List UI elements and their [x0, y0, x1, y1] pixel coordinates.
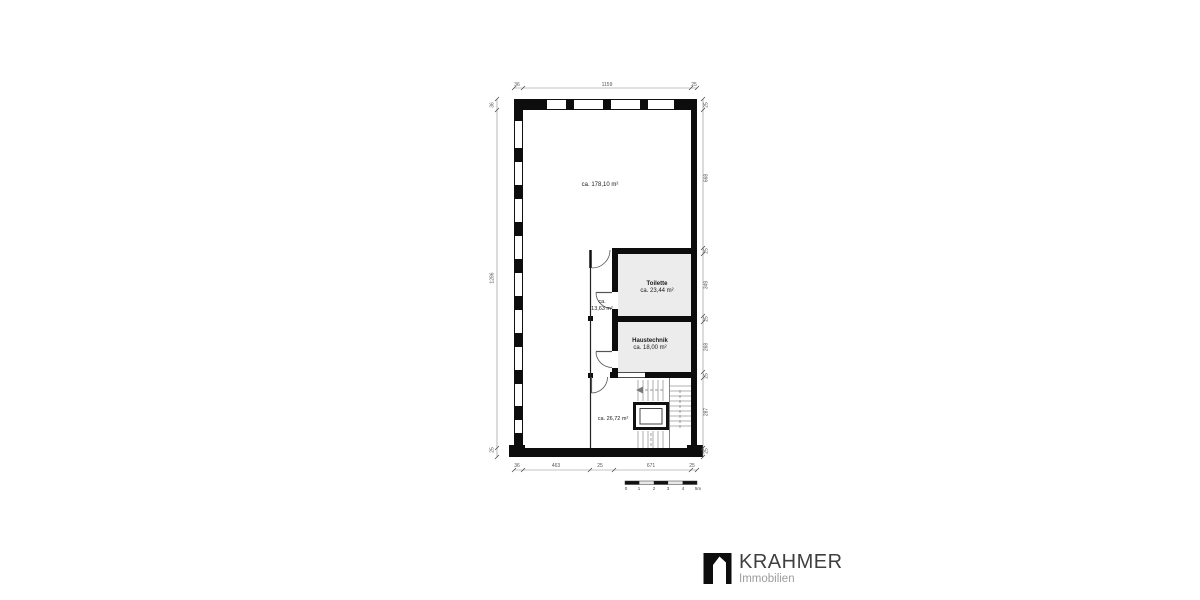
scale-bar: [625, 481, 697, 485]
room-name-haustechnik: Haustechnik: [632, 338, 668, 345]
room-label-main: ca. 178,10 m²: [582, 182, 619, 189]
top-wall-pillars: [514, 99, 697, 110]
room-area-stairwell: ca. 26,72 m²: [598, 416, 629, 422]
house-icon: [703, 552, 732, 585]
stair-direction-arrow: [636, 387, 643, 394]
dim-label-right-6: 25: [705, 373, 710, 379]
dim-label-right-3: 349: [705, 281, 710, 289]
scale-tick-4: 4: [682, 486, 685, 491]
dim-label-left-1: 1286: [491, 272, 496, 283]
room-fills: [618, 254, 691, 372]
room-area-corridor-line2: 13,63 m²: [591, 306, 613, 313]
dim-label-left-0: 36: [491, 102, 496, 108]
dim-label-right-7: 287: [705, 408, 710, 416]
dim-label-right-0: 25: [705, 102, 710, 108]
scale-tick-5: 5m: [695, 486, 701, 491]
company-logo: KRAHMER Immobilien: [703, 552, 843, 585]
scale-tick-3: 3: [667, 486, 670, 491]
scale-tick-1: 1: [638, 486, 641, 491]
room-label-stairwell: ca. 26,72 m²: [598, 416, 629, 423]
elevator-icon: [635, 404, 668, 429]
scale-tick-2: 2: [653, 486, 656, 491]
room-label-corridor: ca. 13,63 m²: [591, 299, 613, 312]
dim-label-top-0: 36: [514, 83, 520, 88]
dim-label-right-1: 668: [705, 174, 710, 182]
interior-opening: [618, 373, 645, 378]
page-canvas: ca. 178,10 m² Toilette ca. 23,44 m² ca. …: [0, 0, 1200, 600]
logo-brand: KRAHMER: [739, 552, 843, 572]
dim-label-top-1: 1159: [602, 83, 613, 88]
room-label-haustechnik: Haustechnik ca. 18,00 m²: [632, 338, 668, 352]
room-area-main: ca. 178,10 m²: [582, 182, 619, 188]
room-area-haustechnik: ca. 18,00 m²: [632, 345, 668, 352]
dim-label-right-4: 25: [705, 316, 710, 322]
logo-text: KRAHMER Immobilien: [739, 552, 843, 585]
dim-label-bottom-4: 25: [689, 464, 695, 469]
left-wall-pillars: [514, 99, 523, 457]
dim-label-bottom-3: 671: [647, 464, 655, 469]
scale-tick-0: 0: [625, 486, 628, 491]
dim-label-bottom-1: 463: [552, 464, 560, 469]
room-area-toilette: ca. 23,44 m²: [640, 288, 673, 295]
dim-label-right-2: 25: [705, 248, 710, 254]
door-symbols: [591, 250, 613, 393]
dim-label-bottom-2: 25: [597, 464, 603, 469]
dim-label-top-2: 25: [691, 83, 697, 88]
dim-label-right-5: 268: [705, 343, 710, 351]
dim-label-right-8: 25: [705, 448, 710, 454]
room-name-toilette: Toilette: [640, 281, 673, 288]
dim-label-bottom-0: 36: [514, 464, 520, 469]
logo-subtitle: Immobilien: [739, 573, 843, 585]
dim-label-left-2: 25: [491, 447, 496, 453]
room-label-toilette: Toilette ca. 23,44 m²: [640, 281, 673, 295]
